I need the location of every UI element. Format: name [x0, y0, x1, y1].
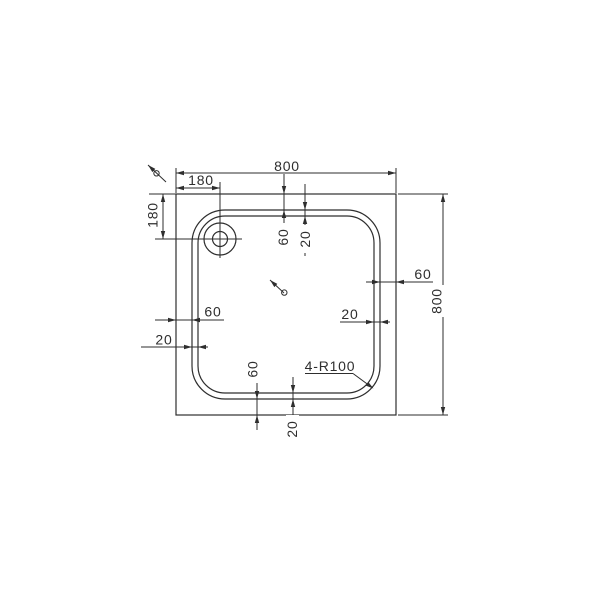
dim-step-bottom: 20	[284, 377, 300, 443]
corner-radius-callout: 4-R100	[305, 358, 375, 390]
arrowhead-down	[441, 407, 445, 415]
arrowhead-left	[176, 171, 184, 175]
dim-rim-top: 60	[275, 174, 291, 251]
arrowhead-left	[396, 280, 404, 284]
arrowhead-down	[282, 186, 286, 194]
dim-label-drain-offset-top: 180	[188, 172, 214, 188]
dim-label-drain-offset-left: 180	[145, 202, 161, 228]
drawing-canvas: 800 180 180 800 60	[0, 0, 600, 600]
dim-label-step-right: 20	[341, 306, 358, 322]
arrowhead-up	[161, 194, 165, 202]
arrowhead-right	[372, 280, 380, 284]
technical-drawing: 800 180 180 800 60	[0, 0, 600, 600]
dim-step-top: 20	[297, 184, 313, 256]
dim-drain-offset-vertical: 180	[145, 194, 177, 239]
arrowhead-up	[303, 216, 307, 224]
dim-label-rim-left: 60	[204, 304, 221, 320]
arrowhead-down	[255, 391, 259, 399]
dim-overall-height: 800	[398, 194, 448, 415]
dim-rim-left: 60	[155, 304, 224, 323]
dim-label-rim-bottom: 60	[245, 360, 261, 377]
arrowhead-right	[366, 320, 374, 324]
arrowhead-left	[380, 320, 388, 324]
dim-step-right: 20	[340, 306, 390, 324]
arrowhead-up	[255, 415, 259, 423]
arrowhead-right	[168, 318, 176, 322]
dim-label-overall-width: 800	[274, 158, 300, 174]
arrowhead-right	[184, 345, 192, 349]
arrowhead-left	[198, 345, 206, 349]
arrowhead-left	[176, 186, 184, 190]
dim-label-rim-top: 60	[275, 228, 291, 245]
arrowhead-right	[388, 171, 396, 175]
dim-label-rim-right: 60	[414, 266, 431, 282]
dim-rim-right: 60	[366, 266, 433, 284]
arrowhead-up	[441, 194, 445, 202]
drain-marker-icon	[146, 163, 166, 182]
corner-radius-label: 4-R100	[305, 358, 356, 374]
arrowhead-left	[192, 318, 200, 322]
dim-label-step-top: 20	[297, 230, 313, 247]
arrowhead-down	[291, 385, 295, 393]
dim-label-step-bottom: 20	[284, 420, 300, 437]
dim-label-step-left: 20	[155, 332, 172, 348]
arrowhead-down	[303, 202, 307, 210]
slope-indicator-icon	[268, 278, 287, 295]
arrowhead-up	[282, 210, 286, 218]
arrowhead-up	[291, 399, 295, 407]
dim-label-overall-height: 800	[429, 288, 445, 314]
arrowhead-down	[161, 231, 165, 239]
